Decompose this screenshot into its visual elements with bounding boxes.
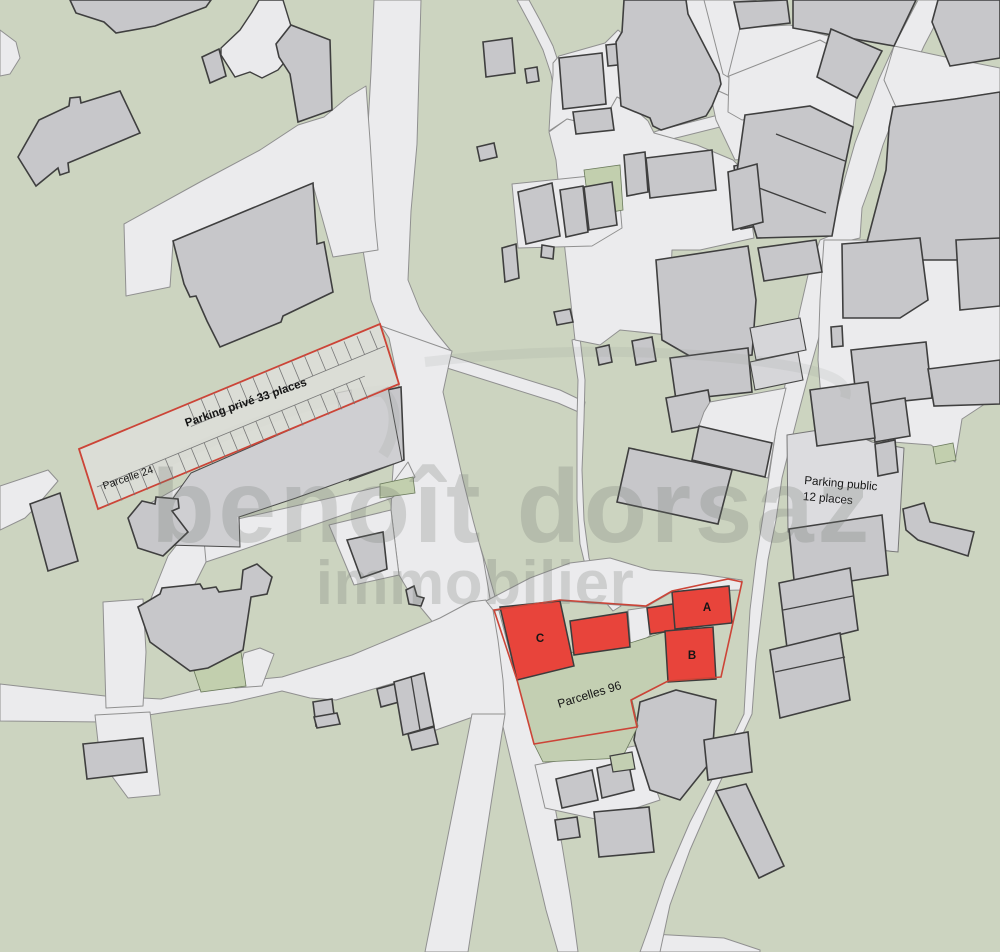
svg-text:C: C (536, 633, 544, 645)
svg-text:immobilier: immobilier (316, 549, 635, 618)
svg-text:B: B (688, 650, 696, 662)
svg-text:A: A (703, 602, 711, 614)
svg-text:benoît dorsaz: benoît dorsaz (151, 449, 873, 565)
